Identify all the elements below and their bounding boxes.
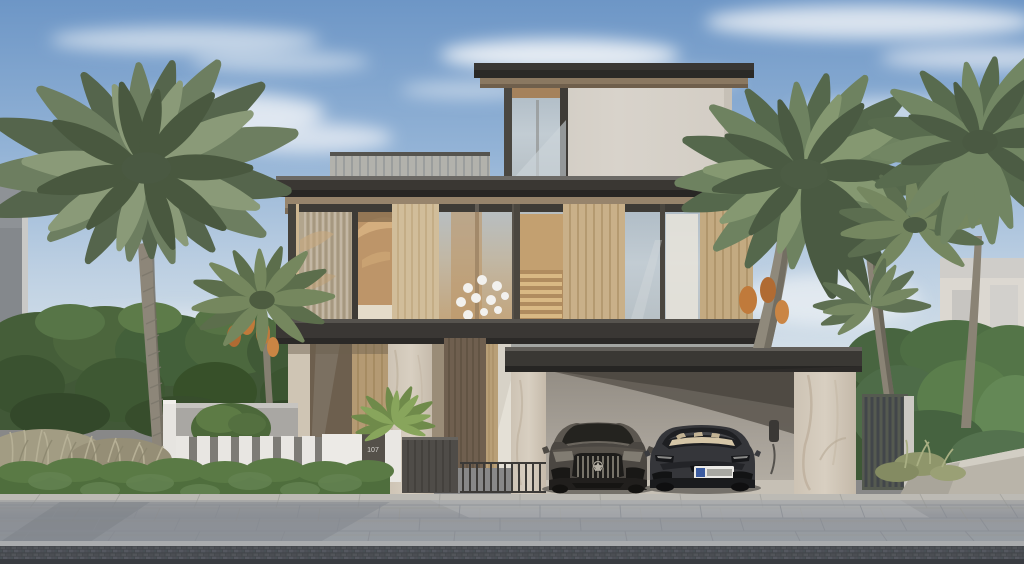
svg-text:107: 107: [367, 447, 379, 454]
